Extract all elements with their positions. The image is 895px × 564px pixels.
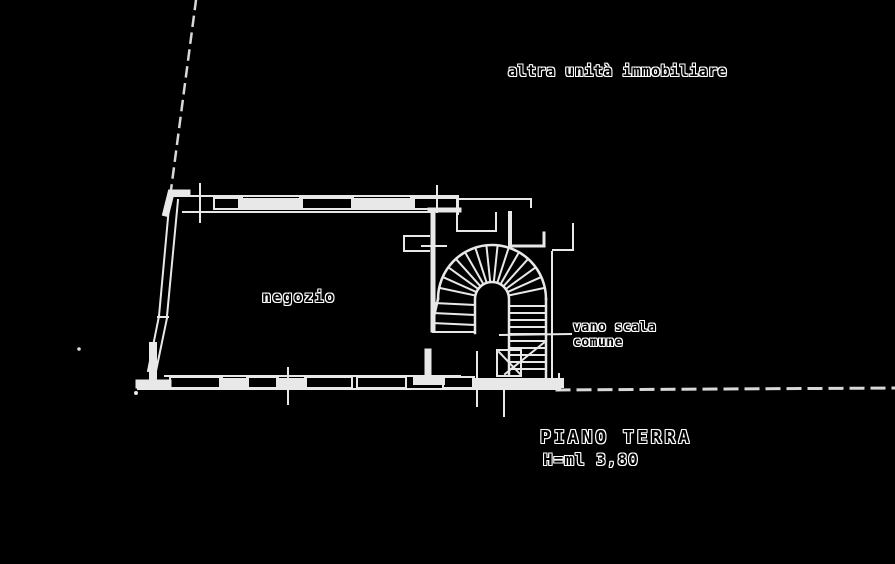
label-other-unit: altra unità immobiliare — [508, 62, 727, 80]
label-floor-height: H=ml 3,80 — [543, 450, 639, 469]
floor-plan-drawing — [0, 0, 895, 564]
tick-marks — [288, 352, 504, 416]
corner-pier-bottomleft — [134, 346, 167, 395]
survey-dot — [77, 347, 81, 351]
stair-label-leader-line — [500, 334, 571, 335]
street-dashed-line — [557, 388, 895, 390]
top-wall — [172, 184, 531, 222]
label-common-stairwell: vano scala comune — [573, 320, 656, 350]
spiral-staircase — [432, 245, 546, 377]
label-floor-title: PIANO TERRA — [540, 427, 692, 448]
label-common-stairwell-line2: comune — [573, 335, 656, 350]
label-shop-room: negozio — [262, 288, 336, 306]
floor-plan-page: altra unità immobiliare negozio vano sca… — [0, 0, 895, 564]
label-common-stairwell-line1: vano scala — [573, 320, 656, 335]
boundary-dashed-line — [171, 0, 196, 190]
